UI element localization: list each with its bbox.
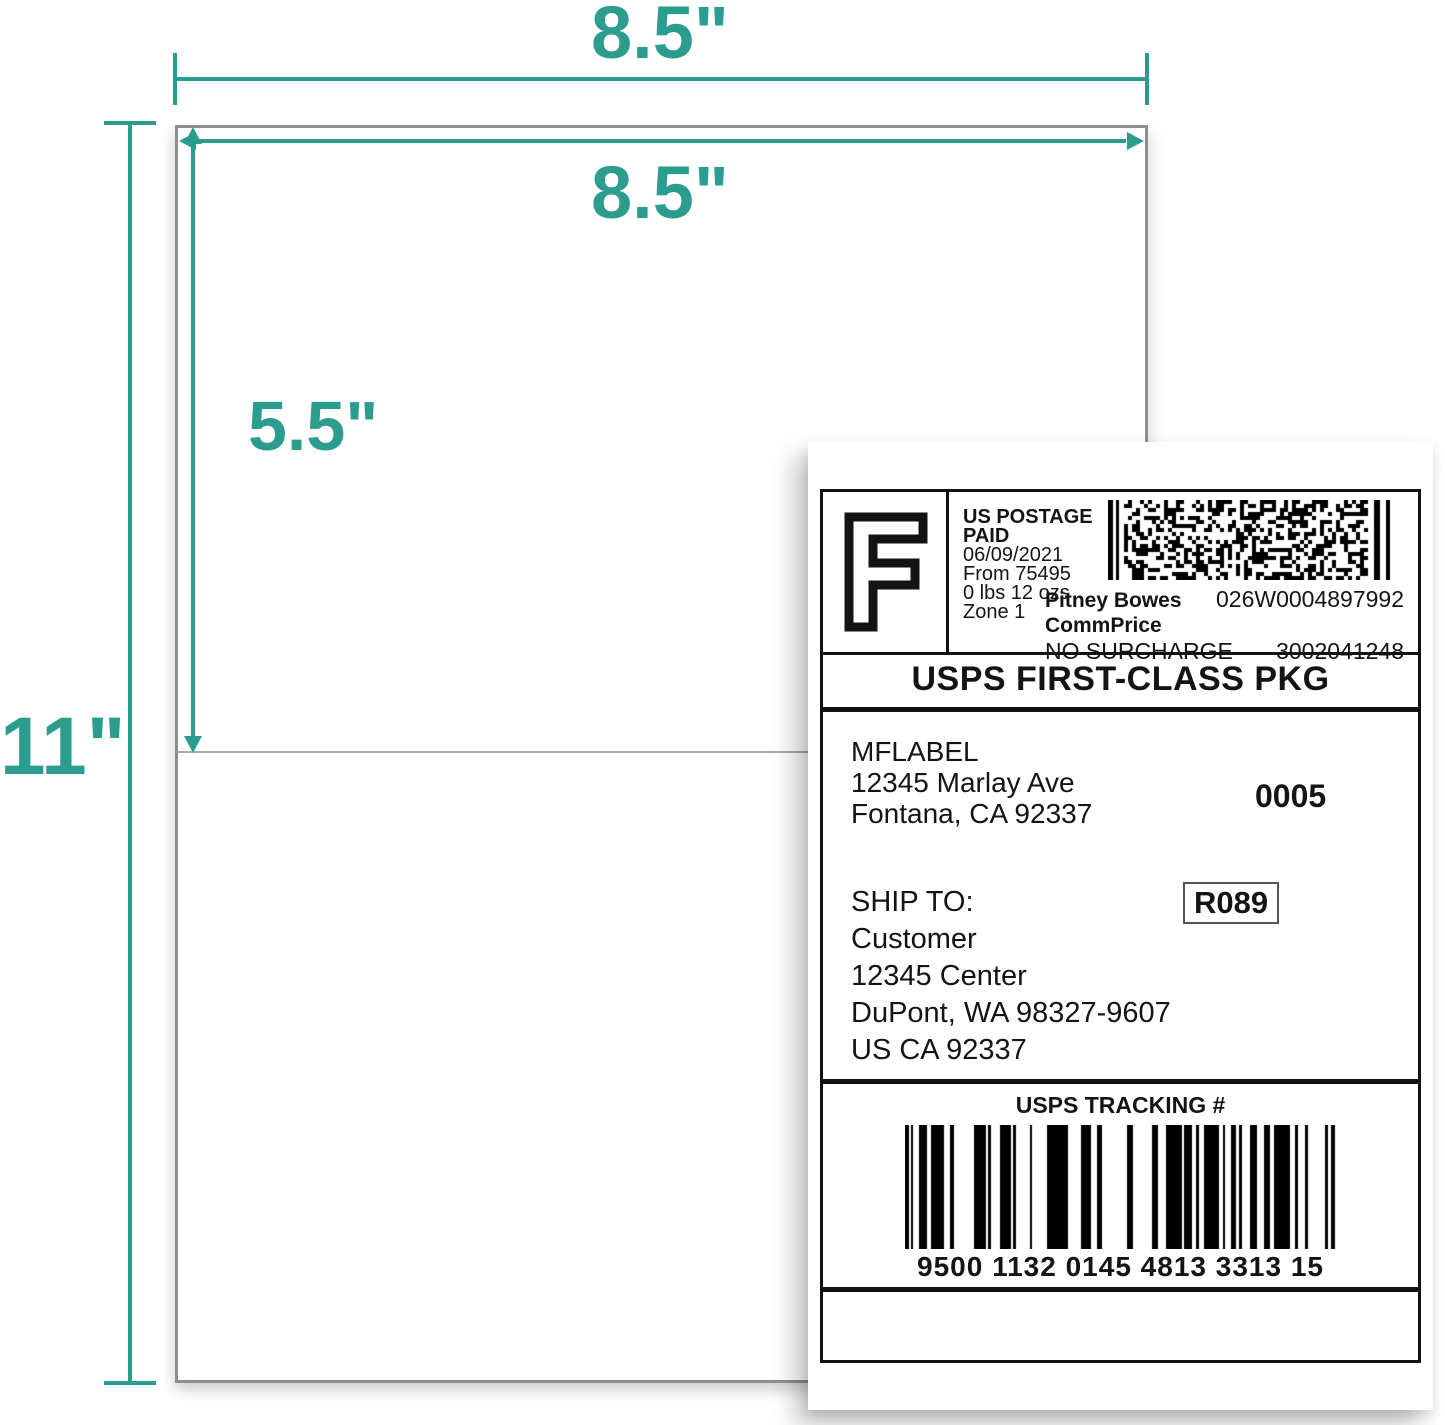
- dimension-tick: [104, 121, 156, 125]
- ship-to-address: SHIP TO: Customer 12345 Center DuPont, W…: [851, 884, 1171, 1069]
- sheet-width-dimension-line: [175, 77, 1148, 81]
- blank-footer-box: [823, 1292, 1418, 1360]
- carrier-row: Pitney Bowes 026W0004897992: [1045, 586, 1404, 613]
- batch-number: 0005: [1255, 778, 1326, 815]
- routing-code-box: R089: [1183, 882, 1279, 924]
- surcharge-text: NO SURCHARGE: [1045, 638, 1233, 665]
- sheet-height-dimension-label: 11": [0, 700, 110, 794]
- from-street: 12345 Marlay Ave: [851, 767, 1092, 798]
- dimension-tick: [173, 53, 177, 105]
- down-arrowhead-icon: [184, 736, 202, 753]
- from-city: Fontana, CA 92337: [851, 798, 1092, 829]
- to-country: US CA 92337: [851, 1032, 1171, 1069]
- meter-id: 026W0004897992: [1216, 586, 1404, 613]
- to-name: Customer: [851, 921, 1171, 958]
- label-height-dimension-label: 5.5": [248, 386, 379, 466]
- dimension-tick: [104, 1381, 156, 1385]
- postage-meter-cell: US POSTAGE PAID 06/09/2021 From 75495 0 …: [949, 492, 1418, 652]
- shipping-label-border: US POSTAGE PAID 06/09/2021 From 75495 0 …: [820, 489, 1421, 1363]
- sheet-height-dimension-line: [128, 123, 132, 1385]
- surcharge-row: NO SURCHARGE 3002041248: [1045, 638, 1404, 665]
- to-street: 12345 Center: [851, 958, 1171, 995]
- dimension-tick: [1145, 53, 1149, 105]
- ship-to-heading: SHIP TO:: [851, 884, 1171, 921]
- postage-class-cell: [823, 492, 949, 652]
- to-city: DuPont, WA 98327-9607: [851, 995, 1171, 1032]
- carrier-name: Pitney Bowes: [1045, 589, 1182, 613]
- label-sheet-diagram: 8.5" 8.5" 5.5" 11" US POSTAGE: [0, 0, 1445, 1425]
- rate-type: CommPrice: [1045, 614, 1404, 638]
- from-name: MFLABEL: [851, 736, 1092, 767]
- postage-f-icon: [841, 511, 929, 633]
- tracking-heading: USPS TRACKING #: [823, 1092, 1418, 1119]
- tracking-number: 9500 1132 0145 4813 3313 15: [823, 1251, 1418, 1283]
- postage-header-section: US POSTAGE PAID 06/09/2021 From 75495 0 …: [823, 492, 1418, 655]
- tracking-barcode: [905, 1125, 1337, 1249]
- label-width-dimension-label: 8.5": [460, 150, 860, 235]
- up-arrowhead-icon: [184, 127, 202, 144]
- meter-detail-rows: Pitney Bowes 026W0004897992 CommPrice NO…: [1045, 586, 1404, 665]
- from-address: MFLABEL 12345 Marlay Ave Fontana, CA 923…: [851, 736, 1092, 829]
- sheet-width-dimension-label: 8.5": [460, 0, 860, 75]
- right-arrowhead-icon: [1127, 132, 1144, 150]
- account-number: 3002041248: [1276, 638, 1404, 665]
- meter-2d-barcode: [1108, 500, 1404, 580]
- label-width-dimension-line: [196, 139, 1126, 143]
- shipping-label-card: US POSTAGE PAID 06/09/2021 From 75495 0 …: [808, 442, 1433, 1410]
- label-height-dimension-line: [191, 144, 195, 737]
- tracking-section: USPS TRACKING # 9500 1132 0145 4813 3313…: [823, 1084, 1418, 1292]
- address-section: MFLABEL 12345 Marlay Ave Fontana, CA 923…: [823, 712, 1418, 1084]
